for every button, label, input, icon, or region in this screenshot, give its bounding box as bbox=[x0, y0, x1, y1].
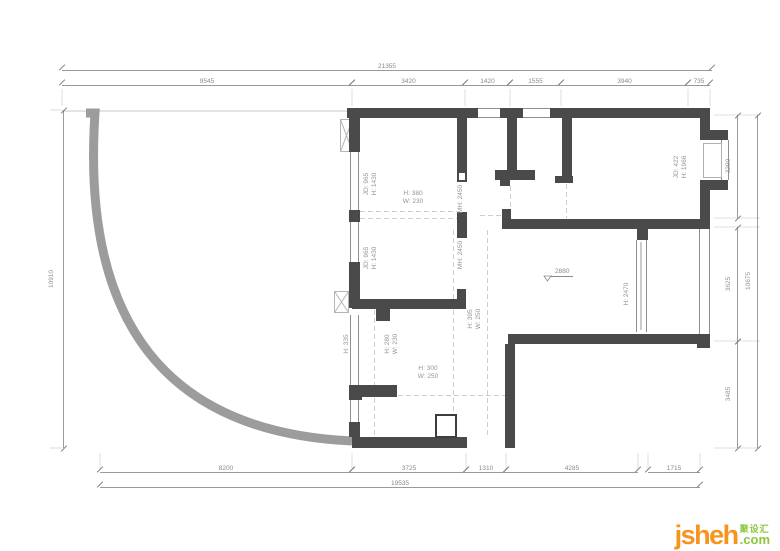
wall-stub bbox=[637, 229, 648, 240]
dim-value: 3725 bbox=[402, 465, 416, 472]
logo-name: jsheh bbox=[675, 525, 738, 546]
plan-linework bbox=[0, 0, 780, 551]
wall-segment bbox=[505, 344, 515, 448]
window bbox=[350, 315, 359, 385]
wall-stub bbox=[502, 209, 511, 219]
label-cabinet-bottom: H: 300 W: 250 bbox=[418, 365, 438, 381]
wall-segment bbox=[700, 108, 710, 132]
dim-bottom-right: 1715 bbox=[648, 472, 700, 473]
dim-value: 735 bbox=[694, 78, 705, 85]
level-triangle-icon bbox=[544, 276, 551, 281]
column-footing bbox=[500, 180, 510, 186]
wall-segment bbox=[508, 334, 710, 344]
dim-value: 19535 bbox=[391, 480, 409, 487]
label-window-left: H: 335 bbox=[343, 334, 351, 353]
label-cabinet-mid: H: 280 W: 230 bbox=[384, 334, 400, 354]
window bbox=[350, 152, 359, 210]
column-footing bbox=[495, 170, 535, 180]
label-cabinet-right: H: 395 W: 250 bbox=[467, 309, 483, 329]
label-opening-upper: MH: 2450 bbox=[457, 185, 465, 213]
curved-wall bbox=[86, 113, 352, 441]
dim-value: 3420 bbox=[401, 78, 415, 85]
column-footing bbox=[555, 176, 573, 183]
wall-segment bbox=[700, 190, 710, 229]
wall-segment bbox=[352, 299, 466, 309]
wall-segment bbox=[500, 108, 523, 118]
wall-segment bbox=[502, 219, 700, 229]
door-pivot bbox=[459, 173, 465, 180]
dim-value: 1310 bbox=[479, 465, 493, 472]
wall-stub bbox=[352, 385, 397, 397]
label-cabinet-top: H: 380 W: 230 bbox=[403, 190, 423, 206]
label-door-left-lower: JD: 965 H: 1430 bbox=[363, 247, 379, 270]
label-partition-height: H: 2470 bbox=[623, 283, 631, 306]
label-opening-lower: MH: 2450 bbox=[457, 241, 465, 269]
dim-value: 9545 bbox=[200, 78, 214, 85]
dim-bottom-segments: 8200 3725 1310 4285 bbox=[100, 472, 638, 473]
wall-segment bbox=[349, 422, 360, 437]
label-door-left-upper: JD: 965 H: 1430 bbox=[363, 173, 379, 196]
dim-value: 10910 bbox=[48, 270, 56, 288]
bay-window-frame bbox=[703, 143, 722, 178]
bay-window-flange bbox=[700, 180, 728, 190]
dim-value: 4285 bbox=[565, 465, 579, 472]
column bbox=[562, 118, 572, 182]
wall-segment bbox=[347, 108, 478, 118]
floor-plan-canvas: JD: 965 H: 1430 JD: 965 H: 1430 H: 380 W… bbox=[0, 0, 780, 551]
dim-value: 1555 bbox=[528, 78, 542, 85]
dim-value: 3940 bbox=[617, 78, 631, 85]
window bbox=[350, 400, 359, 422]
wall-block bbox=[376, 309, 390, 321]
extension-lines bbox=[50, 89, 760, 470]
wall-stub bbox=[457, 289, 466, 299]
door-symbol bbox=[435, 414, 457, 438]
dim-value: 8200 bbox=[219, 465, 233, 472]
dim-value: 3625 bbox=[725, 277, 733, 291]
window bbox=[523, 108, 550, 118]
wall-segment bbox=[349, 112, 360, 152]
window bbox=[699, 229, 710, 338]
wall-block bbox=[457, 212, 467, 238]
wall-segment bbox=[349, 210, 360, 222]
window bbox=[350, 222, 359, 262]
wall-segment bbox=[352, 437, 467, 448]
label-bay-window: JD: 422 H: 1966 bbox=[673, 156, 689, 179]
dim-value: 10675 bbox=[745, 272, 753, 290]
logo-tld: .com bbox=[740, 534, 770, 546]
dim-value: 3290 bbox=[725, 159, 733, 173]
column bbox=[507, 118, 517, 170]
dim-top-segments: 9545 3420 1420 1555 3940 735 bbox=[62, 85, 710, 86]
wall-segment bbox=[550, 108, 710, 118]
window bbox=[478, 108, 500, 118]
dim-bottom-total: 19535 bbox=[100, 487, 700, 488]
level-value: 2880 bbox=[551, 268, 573, 277]
jsheh-logo[interactable]: jsheh 聚设汇 .com bbox=[675, 525, 770, 546]
dim-value: 3485 bbox=[725, 387, 733, 401]
dim-top-total: 21355 bbox=[62, 70, 712, 71]
dim-value: 1420 bbox=[480, 78, 494, 85]
dim-value: 1715 bbox=[667, 465, 681, 472]
dim-value: 21355 bbox=[378, 63, 396, 70]
bay-window-flange bbox=[700, 130, 728, 140]
